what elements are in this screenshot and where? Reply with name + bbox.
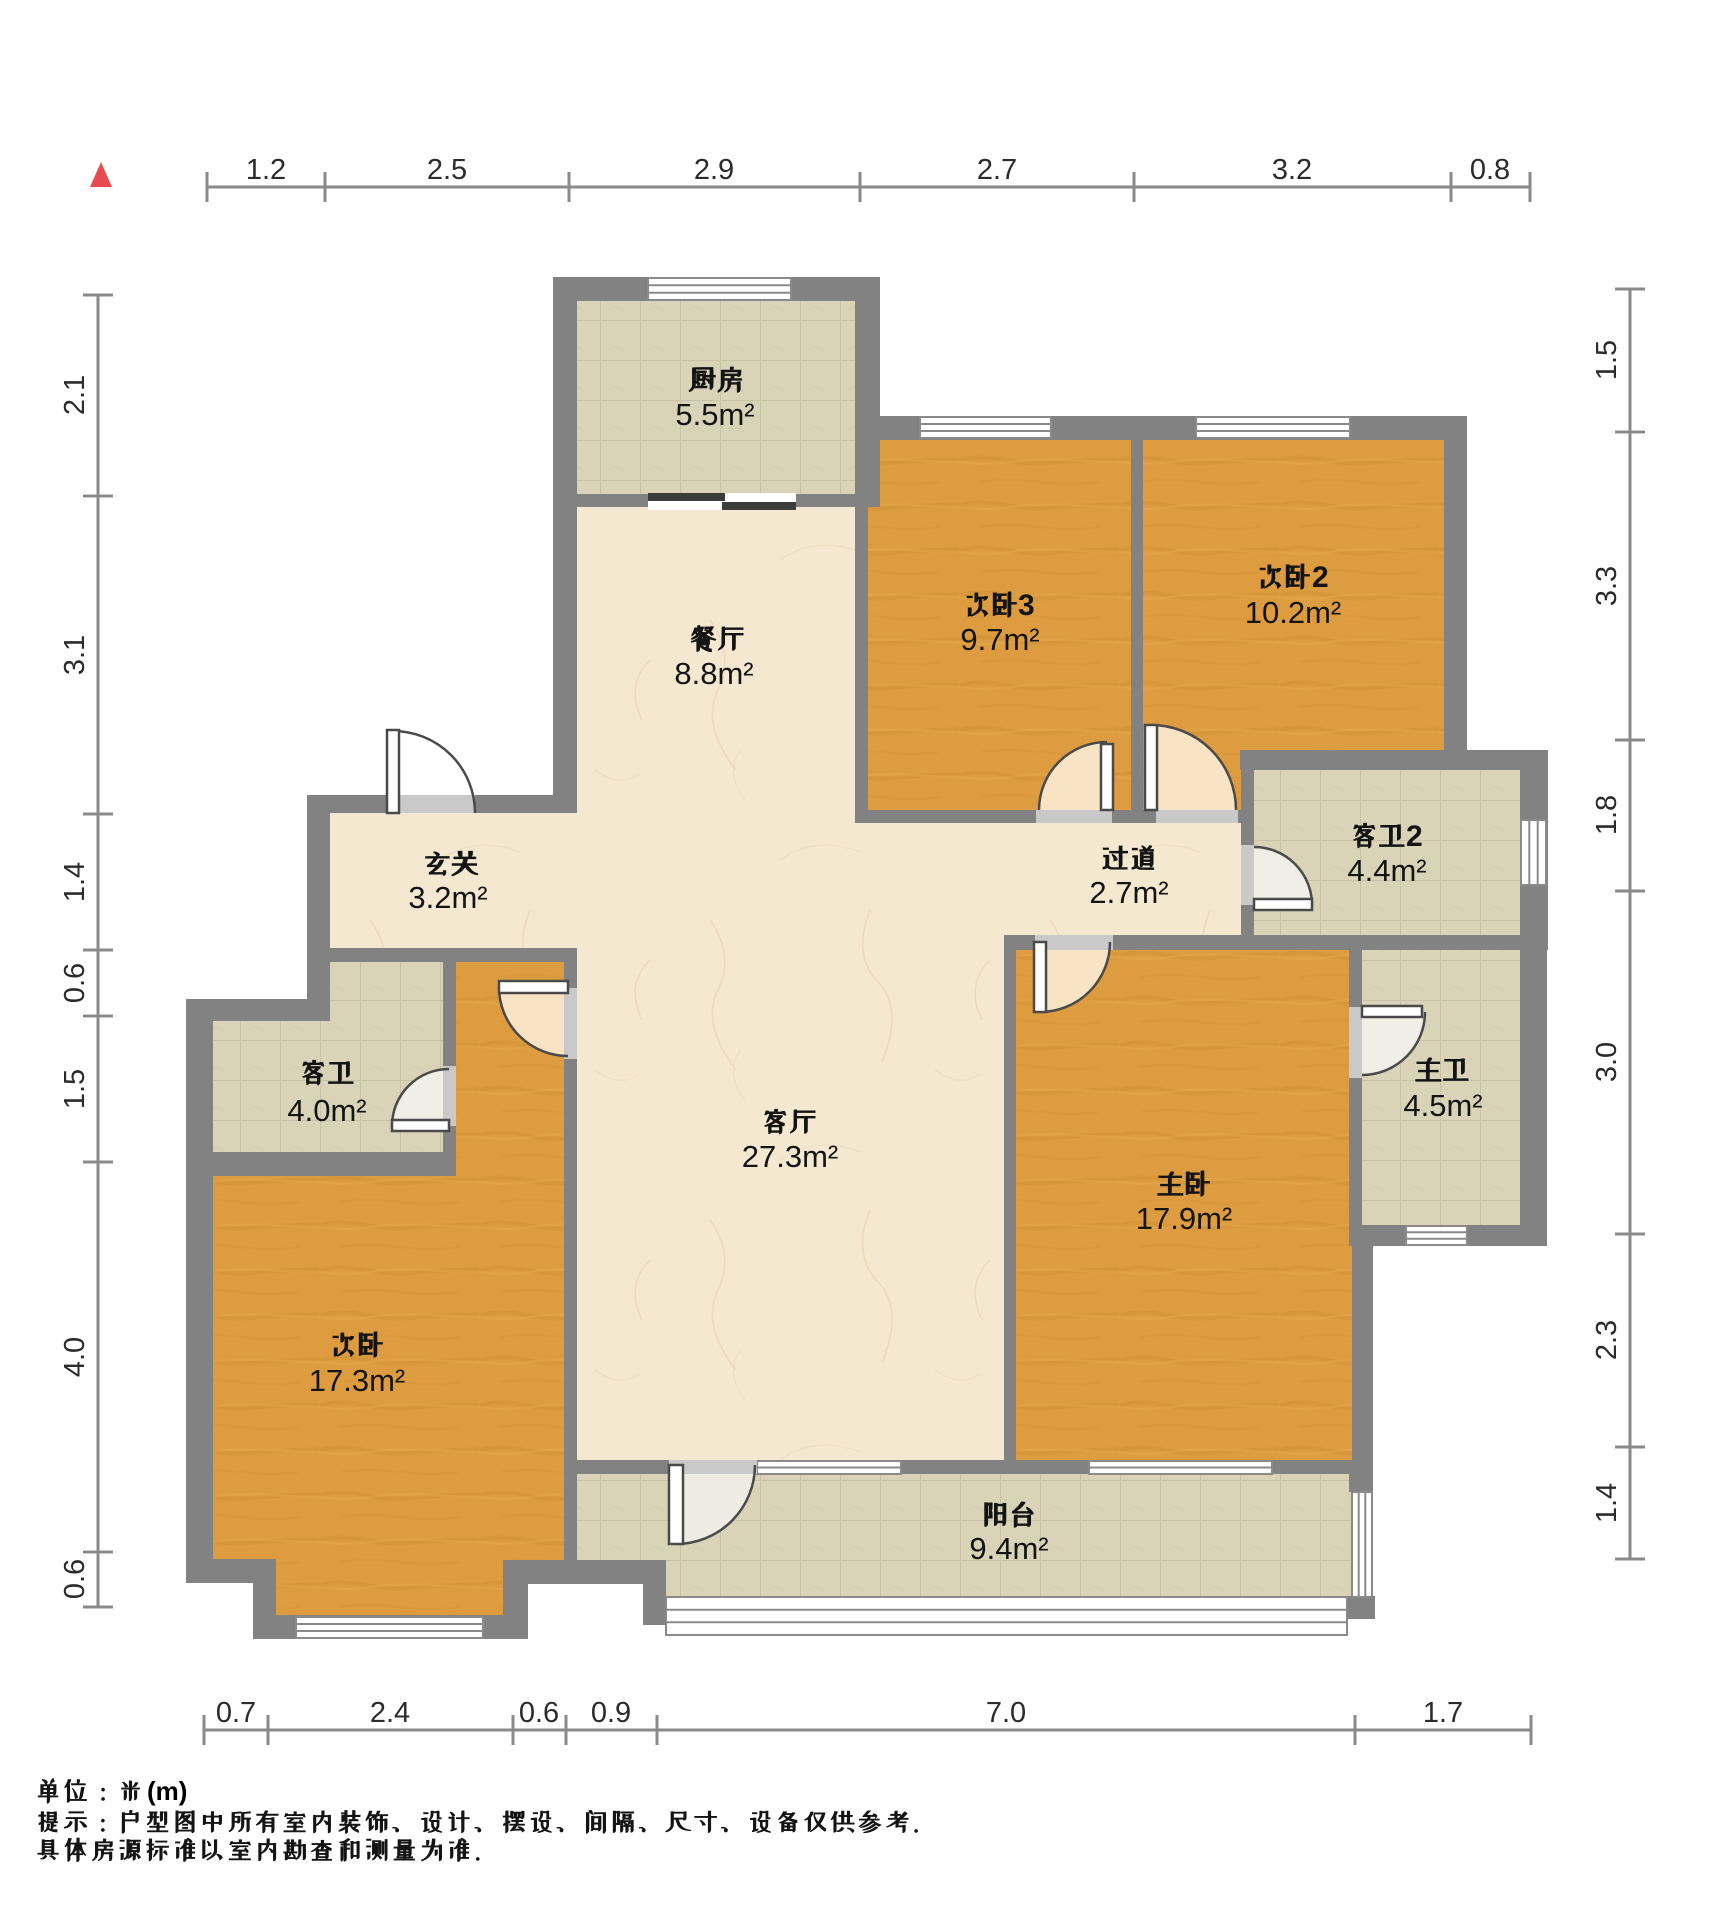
svg-text:3.3: 3.3	[1591, 566, 1623, 606]
svg-text:2.4: 2.4	[370, 1697, 410, 1729]
svg-text:1.4: 1.4	[59, 862, 91, 902]
svg-text:0.6: 0.6	[59, 1559, 91, 1599]
svg-text:17.9m²: 17.9m²	[1136, 1201, 1232, 1236]
svg-text:4.0: 4.0	[59, 1337, 91, 1377]
svg-text:7.0: 7.0	[986, 1697, 1026, 1729]
svg-text:0.6: 0.6	[519, 1697, 559, 1729]
svg-text:2.9: 2.9	[694, 154, 734, 186]
svg-text:3.0: 3.0	[1591, 1042, 1623, 1082]
svg-text:2: 2	[1312, 561, 1329, 594]
svg-text:17.3m²: 17.3m²	[309, 1363, 405, 1398]
svg-text:1.7: 1.7	[1423, 1697, 1463, 1729]
svg-text:3.2: 3.2	[1272, 154, 1312, 186]
svg-text:0.7: 0.7	[216, 1697, 256, 1729]
svg-text:9.7m²: 9.7m²	[960, 622, 1039, 657]
svg-text:0.9: 0.9	[591, 1697, 631, 1729]
svg-text:10.2m²: 10.2m²	[1245, 595, 1341, 630]
svg-text:2.5: 2.5	[427, 154, 467, 186]
svg-text:2.3: 2.3	[1591, 1320, 1623, 1360]
svg-text:2.7m²: 2.7m²	[1089, 875, 1168, 910]
svg-text:3.2m²: 3.2m²	[408, 880, 487, 915]
svg-text:8.8m²: 8.8m²	[674, 656, 753, 691]
svg-text:4.0m²: 4.0m²	[287, 1093, 366, 1128]
svg-text:5.5m²: 5.5m²	[675, 397, 754, 432]
svg-text:3: 3	[1018, 589, 1035, 622]
svg-text:9.4m²: 9.4m²	[969, 1531, 1048, 1566]
svg-text:3.1: 3.1	[59, 635, 91, 675]
svg-text:4.5m²: 4.5m²	[1403, 1088, 1482, 1123]
svg-text:0.6: 0.6	[59, 963, 91, 1003]
svg-text:(m): (m)	[147, 1776, 187, 1806]
svg-text:1.2: 1.2	[246, 154, 286, 186]
svg-text:1.5: 1.5	[1591, 340, 1623, 380]
svg-text:1.5: 1.5	[59, 1069, 91, 1109]
svg-text:0.8: 0.8	[1470, 154, 1510, 186]
svg-text:27.3m²: 27.3m²	[742, 1139, 838, 1174]
svg-text:2: 2	[1406, 820, 1423, 853]
svg-text:2.7: 2.7	[977, 154, 1017, 186]
svg-text:1.4: 1.4	[1591, 1483, 1623, 1523]
svg-text:4.4m²: 4.4m²	[1347, 853, 1426, 888]
svg-text:1.8: 1.8	[1591, 795, 1623, 835]
svg-text:2.1: 2.1	[59, 375, 91, 415]
